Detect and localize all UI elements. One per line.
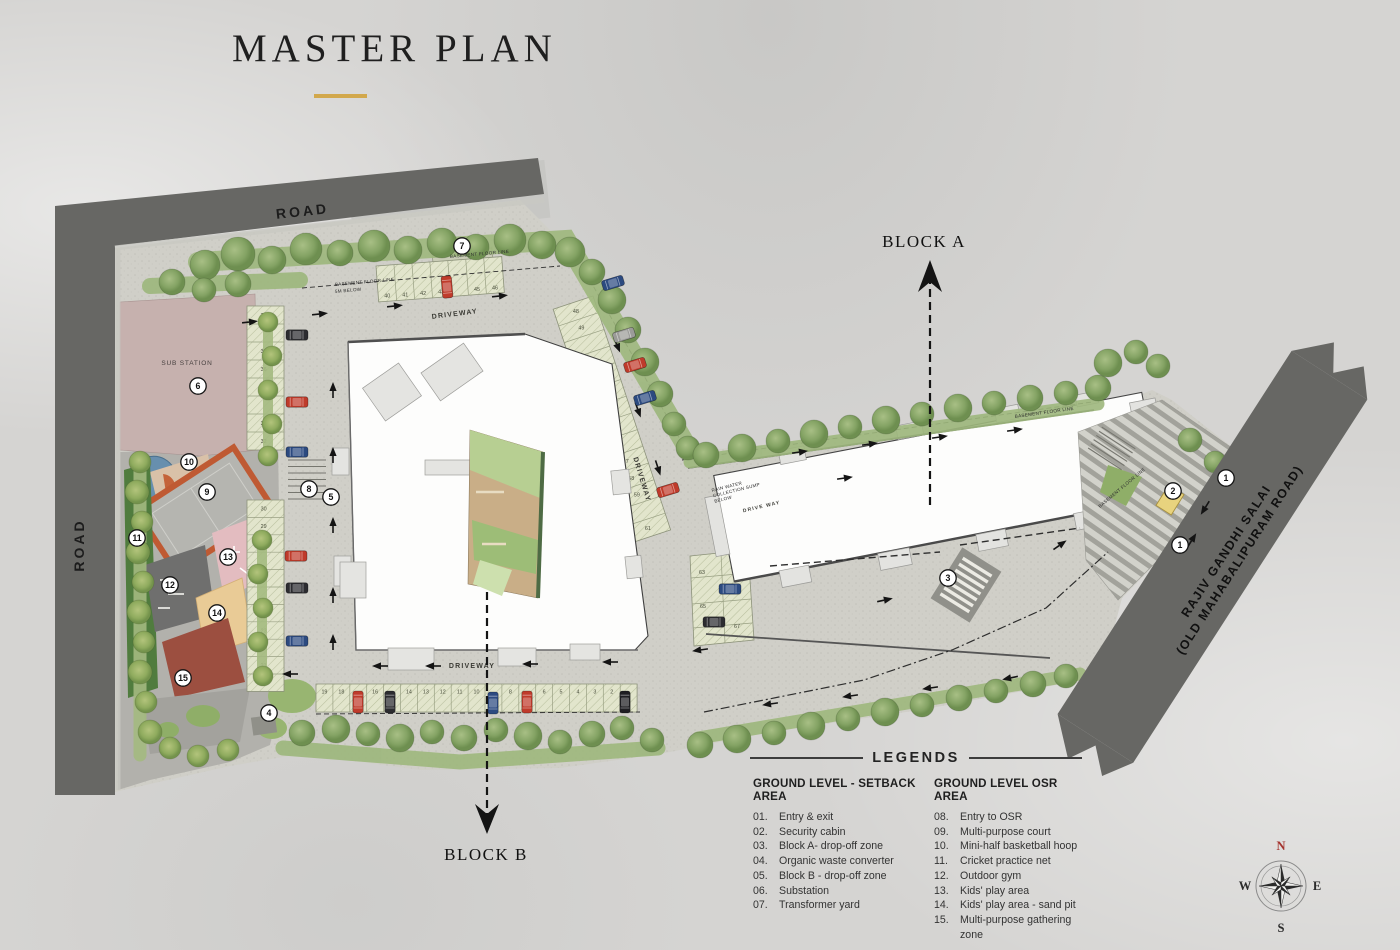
legend-item: 08.Entry to OSR [934,810,1082,825]
legend-item-label: Block A- drop-off zone [779,839,883,854]
substation-zone [120,294,258,456]
block-b-building [332,334,648,670]
legend-item-number: 11. [934,854,960,869]
plan-marker-number: 15 [178,673,188,683]
plan-marker: 8 [301,481,317,497]
tree-icon [1124,340,1148,364]
stall-number: 13 [423,690,429,696]
car-icon [385,691,395,713]
palm-tree-icon [129,451,151,473]
tree-icon [797,712,825,740]
legend-item: 09.Multi-purpose court [934,825,1082,840]
compass-rose: N E S W [1238,836,1324,936]
tree-icon [662,412,686,436]
road-left-label: ROAD [71,518,87,571]
legend-item-number: 13. [934,884,960,899]
car-icon [286,583,308,593]
legend-item-number: 15. [934,913,960,942]
tree-icon [514,722,542,750]
tree-icon [159,269,185,295]
plan-marker-number: 13 [223,552,233,562]
legend-item: 15.Multi-purpose gathering zone [934,913,1082,942]
tree-icon [579,259,605,285]
plan-marker-number: 10 [184,457,194,467]
palm-tree-icon [133,631,155,653]
palm-tree-icon [187,745,209,767]
stall-number: 10 [474,690,480,696]
plan-marker: 9 [199,484,215,500]
tree-icon [723,725,751,753]
legend-column-title: GROUND LEVEL OSR AREA [934,777,1082,803]
plan-marker: 7 [454,238,470,254]
block-b-label: BLOCK B [444,845,528,864]
palm-tree-icon [127,600,151,624]
legend-column-setback: GROUND LEVEL - SETBACK AREA 01.Entry & e… [753,777,929,913]
plan-marker: 1 [1172,537,1188,553]
stall-number: 2 [610,690,613,696]
palm-tree-icon [248,632,268,652]
car-icon [488,692,498,714]
tree-icon [640,728,664,752]
plan-marker-number: 7 [460,241,465,251]
stall-number: 16 [372,690,378,696]
plan-marker-number: 12 [165,580,175,590]
compass-west-label: W [1239,879,1252,893]
tree-icon [687,732,713,758]
title-accent-rule [314,94,367,98]
tree-icon [871,698,899,726]
legend-column-title: GROUND LEVEL - SETBACK AREA [753,777,929,803]
car-icon [285,551,307,561]
stall-number: 40 [384,294,390,300]
car-icon [286,447,308,457]
tree-icon [190,250,220,280]
palm-tree-icon [135,691,157,713]
legend-item: 07.Transformer yard [753,898,929,913]
legend-item: 03.Block A- drop-off zone [753,839,929,854]
road-left-surface [55,206,115,795]
legend-item-number: 09. [934,825,960,840]
tree-icon [327,240,353,266]
plan-marker-number: 5 [329,492,334,502]
plan-marker-number: 4 [267,708,272,718]
legend-item-label: Cricket practice net [960,854,1051,869]
plan-marker-number: 14 [212,608,222,618]
plan-marker: 2 [1165,483,1181,499]
legends-rule-left [750,757,863,759]
tree-icon [192,278,216,302]
legend-column-osr: GROUND LEVEL OSR AREA 08.Entry to OSR09.… [934,777,1082,942]
legend-item-number: 08. [934,810,960,825]
substation-label: SUB STATION [161,360,212,367]
legends-rule-right [969,757,1082,759]
legend-item-label: Kids' play area - sand pit [960,898,1076,913]
car-icon [703,617,725,627]
palm-tree-icon [253,598,273,618]
legend-item-number: 07. [753,898,779,913]
palm-tree-icon [258,446,278,466]
plan-marker-number: 1 [1178,540,1183,550]
stall-number: 5 [560,690,563,696]
stall-number: 61 [645,526,651,532]
plan-marker: 3 [940,570,956,586]
tree-icon [386,724,414,752]
car-icon [286,636,308,646]
plan-marker: 14 [209,605,225,621]
legend-item-number: 10. [934,839,960,854]
tree-icon [579,721,605,747]
block-a-label: BLOCK A [882,232,966,251]
palm-tree-icon [253,666,273,686]
car-icon [353,691,363,713]
plan-marker-number: 11 [132,533,141,543]
tree-icon [836,707,860,731]
stall-number: 67 [734,624,740,630]
stall-number: 14 [406,690,412,696]
tree-icon [451,725,477,751]
stall-number: 30 [261,507,267,513]
tree-icon [944,394,972,422]
tree-icon [1020,671,1046,697]
car-icon [286,397,308,407]
site-plan: 3937363533323029282624232120404142434546… [0,0,1400,950]
tree-icon [1094,349,1122,377]
stall-number: 48 [573,309,579,315]
stall-number: 41 [402,292,408,298]
tree-icon [838,415,862,439]
plan-marker-number: 6 [196,381,201,391]
palm-tree-icon [258,312,278,332]
tree-icon [982,391,1006,415]
plan-marker-number: 9 [205,487,210,497]
palm-tree-icon [262,346,282,366]
car-icon [441,276,453,299]
plan-marker: 5 [323,489,339,505]
plan-marker: 13 [220,549,236,565]
tree-icon [872,406,900,434]
legend-item: 12.Outdoor gym [934,869,1082,884]
palm-tree-icon [159,737,181,759]
plan-marker: 15 [175,670,191,686]
legend-item-number: 04. [753,854,779,869]
legend-item-label: Transformer yard [779,898,860,913]
legend-item: 01.Entry & exit [753,810,929,825]
legend-item-label: Mini-half basketball hoop [960,839,1077,854]
legend-item-number: 06. [753,884,779,899]
legend-item-label: Block B - drop-off zone [779,869,887,884]
tree-icon [221,237,255,271]
legend-item-number: 05. [753,869,779,884]
legend-item-number: 14. [934,898,960,913]
palm-tree-icon [128,660,152,684]
stall-number: 3 [593,690,596,696]
stall-number: 4 [576,690,579,696]
palm-tree-icon [262,414,282,434]
master-plan-page: 3937363533323029282624232120404142434546… [0,0,1400,950]
tree-icon [693,442,719,468]
legend-item: 10.Mini-half basketball hoop [934,839,1082,854]
tree-icon [225,271,251,297]
tree-icon [800,420,828,448]
legend-item: 05.Block B - drop-off zone [753,869,929,884]
compass-south-label: S [1278,921,1285,935]
compass-east-label: E [1313,879,1321,893]
palm-tree-icon [132,571,154,593]
tree-icon [1178,428,1202,452]
car-icon [719,584,741,594]
driveway-label: DRIVEWAY [449,663,495,670]
parking-strip: 1918161413121110865432 [316,684,637,712]
legends-title: LEGENDS [872,750,960,766]
tree-icon [728,434,756,462]
legend-item-label: Multi-purpose gathering zone [960,913,1082,942]
plan-marker-number: 8 [307,484,312,494]
palm-tree-icon [248,564,268,584]
legend-item: 13.Kids' play area [934,884,1082,899]
tree-icon [946,685,972,711]
legend-item-number: 01. [753,810,779,825]
stall-number: 59 [634,493,640,499]
car-icon [286,330,308,340]
legend-item: 02.Security cabin [753,825,929,840]
plan-marker: 4 [261,705,277,721]
tree-icon [555,237,585,267]
tree-icon [1146,354,1170,378]
legend-item-label: Entry & exit [779,810,833,825]
tree-icon [289,720,315,746]
plan-marker: 12 [162,577,178,593]
stall-number: 63 [699,570,705,576]
tree-icon [1085,375,1111,401]
central-courtyard [468,430,543,598]
stall-number: 49 [578,325,584,331]
tree-icon [358,230,390,262]
tree-icon [322,715,350,743]
palm-tree-icon [125,480,149,504]
plan-marker: 11 [129,530,145,546]
tree-icon [1017,385,1043,411]
legend-item-label: Organic waste converter [779,854,894,869]
legend-item-label: Kids' play area [960,884,1029,899]
stall-number: 45 [474,287,480,293]
plan-marker: 10 [181,454,197,470]
palm-tree-icon [258,380,278,400]
palm-tree-icon [252,530,272,550]
stall-number: 65 [700,604,706,610]
legend-item-label: Substation [779,884,829,899]
plan-marker: 1 [1218,470,1234,486]
plan-marker-number: 2 [1171,486,1176,496]
stall-number: 6 [543,690,546,696]
legend-item-number: 03. [753,839,779,854]
legend-item-label: Entry to OSR [960,810,1022,825]
tree-icon [610,716,634,740]
legend-item-number: 02. [753,825,779,840]
tree-icon [548,730,572,754]
tree-icon [1054,664,1078,688]
legend-item: 11.Cricket practice net [934,854,1082,869]
tree-icon [910,693,934,717]
tree-icon [290,233,322,265]
tree-icon [528,231,556,259]
legend-item-label: Outdoor gym [960,869,1021,884]
palm-tree-icon [138,720,162,744]
stall-number: 8 [509,690,512,696]
car-icon [620,691,630,713]
plan-marker-number: 3 [946,573,951,583]
legend-item-label: Security cabin [779,825,846,840]
legend-item-label: Multi-purpose court [960,825,1051,840]
tree-icon [394,236,422,264]
tree-icon [598,286,626,314]
stall-number: 19 [321,690,327,696]
stall-number: 29 [261,524,267,530]
stall-number: 11 [457,690,463,696]
legends-header: LEGENDS [750,750,1082,766]
stall-number: 46 [492,286,498,292]
tree-icon [420,720,444,744]
compass-north-label: N [1276,839,1285,853]
car-icon [522,691,532,713]
car-icon [601,275,625,291]
stall-number: 18 [338,690,344,696]
plan-marker: 6 [190,378,206,394]
tree-icon [258,246,286,274]
legend-item: 14.Kids' play area - sand pit [934,898,1082,913]
tree-icon [356,722,380,746]
stall-number: 42 [420,291,426,297]
legend-item-number: 12. [934,869,960,884]
legend-item: 04.Organic waste converter [753,854,929,869]
plan-marker-number: 1 [1224,473,1229,483]
legends-panel: LEGENDS GROUND LEVEL - SETBACK AREA 01.E… [750,750,1082,777]
tree-icon [762,721,786,745]
legend-item: 06.Substation [753,884,929,899]
stall-number: 12 [440,690,446,696]
tree-icon [766,429,790,453]
tree-icon [984,679,1008,703]
page-title: MASTER PLAN [232,26,557,71]
tree-icon [1054,381,1078,405]
palm-tree-icon [217,739,239,761]
